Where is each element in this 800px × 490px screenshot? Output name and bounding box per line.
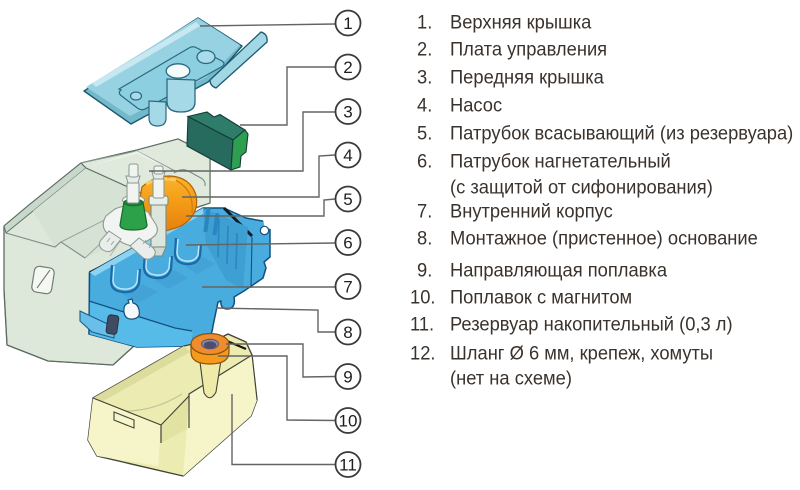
svg-text:10: 10 — [339, 412, 358, 431]
svg-text:3: 3 — [343, 103, 352, 122]
svg-text:7: 7 — [343, 278, 352, 297]
svg-text:2: 2 — [343, 58, 352, 77]
svg-text:6: 6 — [343, 234, 352, 253]
svg-text:9: 9 — [343, 368, 352, 387]
svg-text:1: 1 — [343, 14, 352, 33]
svg-text:8: 8 — [343, 323, 352, 342]
svg-text:4: 4 — [343, 146, 352, 165]
svg-text:5: 5 — [343, 190, 352, 209]
svg-text:11: 11 — [339, 456, 357, 475]
